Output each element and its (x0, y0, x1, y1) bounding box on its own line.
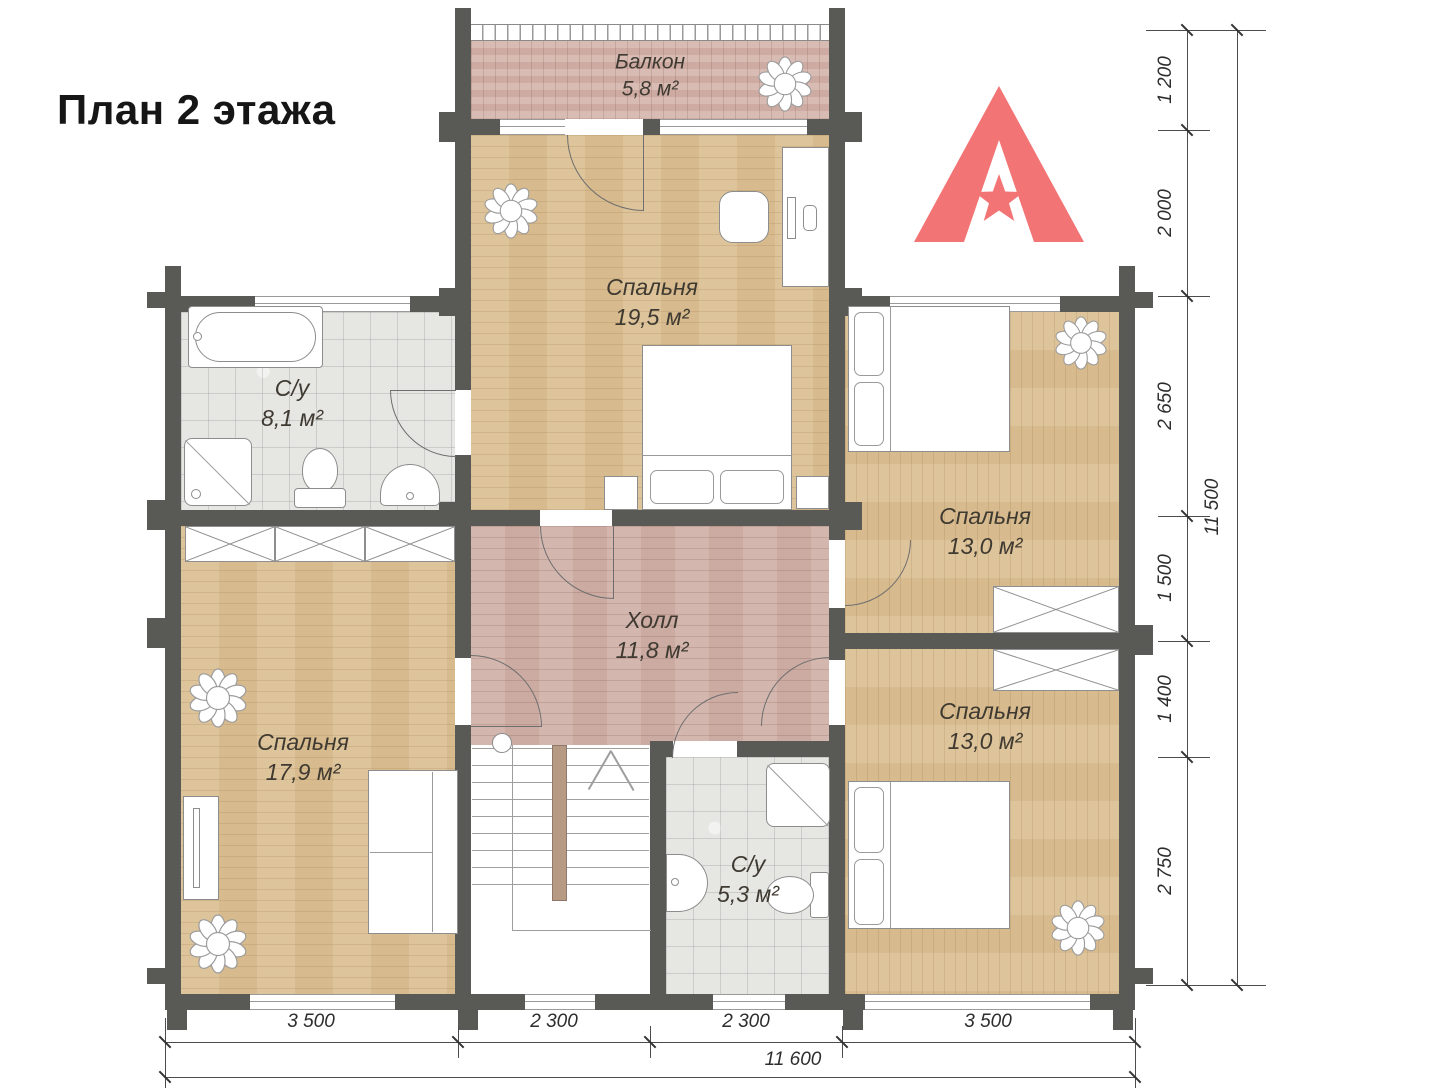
room-area: 5,3 м² (717, 880, 779, 910)
room-name: С/у (261, 374, 323, 404)
dimension-label: 2 300 (530, 1011, 578, 1033)
monitor (787, 197, 796, 239)
pillow (854, 312, 884, 376)
plant-icon (1054, 316, 1108, 370)
plant-icon (1050, 900, 1106, 956)
dimension-guide (1158, 130, 1210, 131)
sink-tap-icon (406, 492, 414, 500)
window (713, 994, 785, 1010)
dimension-line (1187, 30, 1188, 985)
sofa-seat-line (370, 852, 432, 853)
stairs-rail-edge (512, 745, 651, 931)
log-joint (147, 500, 165, 530)
bathtub-inner (195, 312, 316, 362)
log-joint (1113, 1010, 1133, 1030)
room-label-bathroom-left: С/у 8,1 м² (261, 374, 323, 434)
room-name: Спальня (939, 697, 1031, 727)
nightstand (796, 476, 829, 509)
dimension-label: 3 500 (964, 1011, 1012, 1033)
log-joint (455, 8, 471, 20)
pillow (854, 787, 884, 853)
wardrobe (365, 526, 455, 562)
toilet (302, 448, 338, 492)
dimension-label: 1 400 (1155, 675, 1177, 723)
log-joint (147, 618, 165, 648)
wall (829, 725, 845, 1010)
floor-plan: Балкон 5,8 м² Спальня 19,5 м² С/у 8,1 м²… (0, 0, 1450, 1080)
dimension-label: 2 000 (1155, 189, 1177, 237)
plant-icon (483, 183, 539, 239)
desk-item (803, 205, 817, 231)
window (250, 994, 395, 1010)
room-label-bedroom-right-top: Спальня 13,0 м² (939, 502, 1031, 562)
plant-icon (188, 668, 248, 728)
door-opening (540, 510, 612, 526)
door-opening (455, 658, 471, 725)
room-label-bedroom-top: Спальня 19,5 м² (606, 273, 698, 333)
bed-blanket-line (890, 782, 891, 928)
room-label-hall: Холл 11,8 м² (616, 606, 689, 666)
log-joint (1119, 266, 1135, 296)
log-joint (458, 1010, 478, 1030)
dimension-total-label: 11 500 (1202, 479, 1224, 536)
faucet-icon (193, 332, 202, 341)
room-label-balcony: Балкон 5,8 м² (615, 49, 685, 104)
wardrobe (185, 526, 275, 562)
wall (455, 20, 471, 390)
log-joint (845, 112, 862, 142)
wall (829, 20, 845, 540)
wall (650, 741, 666, 1010)
nightstand (604, 476, 638, 510)
chair (719, 191, 769, 243)
log-joint (439, 112, 455, 142)
window (865, 994, 1090, 1010)
room-area: 19,5 м² (606, 303, 698, 333)
door-opening (455, 390, 471, 455)
log-joint (1135, 625, 1153, 655)
room-name: Балкон (615, 49, 685, 76)
log-joint (147, 292, 165, 308)
page-title: План 2 этажа (57, 86, 336, 134)
wall (840, 633, 1135, 649)
log-joint (167, 1010, 187, 1030)
dimension-label: 2 300 (722, 1011, 770, 1033)
shower-drain-icon (191, 489, 201, 499)
wardrobe (275, 526, 365, 562)
dresser-detail (193, 808, 200, 888)
logo-a-icon (914, 86, 1084, 242)
room-label-bedroom-left: Спальня 17,9 м² (257, 728, 349, 788)
stairs-stringer (552, 745, 567, 901)
toilet-tank (294, 488, 346, 508)
plant-icon (188, 914, 248, 974)
room-name: С/у (717, 850, 779, 880)
log-joint (1135, 968, 1153, 984)
dimension-line (165, 1077, 1135, 1078)
dimension-label: 2 650 (1155, 382, 1177, 430)
stairs-newel-icon (492, 733, 512, 753)
log-joint (439, 288, 455, 316)
pillow (720, 470, 784, 504)
dimension-label: 1 200 (1155, 56, 1177, 104)
sofa-back-line (432, 772, 433, 932)
wall (165, 296, 181, 1010)
almaz-wood-logo: ALMAZ WOOD (912, 82, 1087, 250)
room-area: 11,8 м² (616, 636, 689, 666)
pillow (854, 382, 884, 446)
room-name: Спальня (606, 273, 698, 303)
window (500, 119, 565, 135)
window (660, 119, 807, 135)
wardrobe (993, 586, 1119, 633)
log-joint (1135, 292, 1153, 308)
dimension-guide (1146, 985, 1266, 986)
room-area: 5,8 м² (615, 76, 685, 103)
pillow (854, 859, 884, 925)
room-area: 13,0 м² (939, 727, 1031, 757)
wall (165, 510, 845, 526)
plant-icon (757, 56, 813, 112)
dimension-label: 3 500 (287, 1011, 335, 1033)
wall (1119, 296, 1135, 1010)
room-area: 8,1 м² (261, 404, 323, 434)
pillow (650, 470, 714, 504)
room-label-bathroom-bottom: С/у 5,3 м² (717, 850, 779, 910)
dimension-guide (1146, 30, 1266, 31)
wall (643, 119, 660, 135)
dimension-guide (1158, 641, 1210, 642)
dimension-guide (1158, 296, 1210, 297)
wardrobe (993, 649, 1119, 691)
dimension-line (1237, 30, 1238, 985)
log-joint (165, 266, 181, 296)
room-name: Спальня (939, 502, 1031, 532)
bed-blanket-line (643, 455, 791, 456)
door-opening (829, 660, 845, 725)
log-joint (147, 968, 165, 984)
room-area: 17,9 м² (257, 758, 349, 788)
room-name: Холл (616, 606, 689, 636)
balcony-railing (471, 24, 829, 41)
room-name: Спальня (257, 728, 349, 758)
dimension-total-label: 11 600 (765, 1049, 822, 1071)
dresser (183, 796, 219, 900)
door-opening (565, 119, 643, 135)
room-label-bedroom-right-bottom: Спальня 13,0 м² (939, 697, 1031, 757)
door-opening (829, 540, 845, 608)
window (525, 994, 595, 1010)
log-joint (829, 8, 845, 20)
bed-blanket-line (890, 307, 891, 451)
sink-tap-icon (671, 878, 679, 886)
dimension-label: 1 500 (1155, 554, 1177, 602)
dimension-label: 2 750 (1155, 847, 1177, 895)
room-area: 13,0 м² (939, 532, 1031, 562)
floor-plan-page: { "title": "План 2 этажа", "logo": { "br… (0, 0, 1450, 1080)
log-joint (845, 502, 862, 530)
dimension-guide (1158, 757, 1210, 758)
wall (455, 455, 471, 658)
log-joint (843, 1010, 863, 1030)
shower (766, 763, 830, 827)
